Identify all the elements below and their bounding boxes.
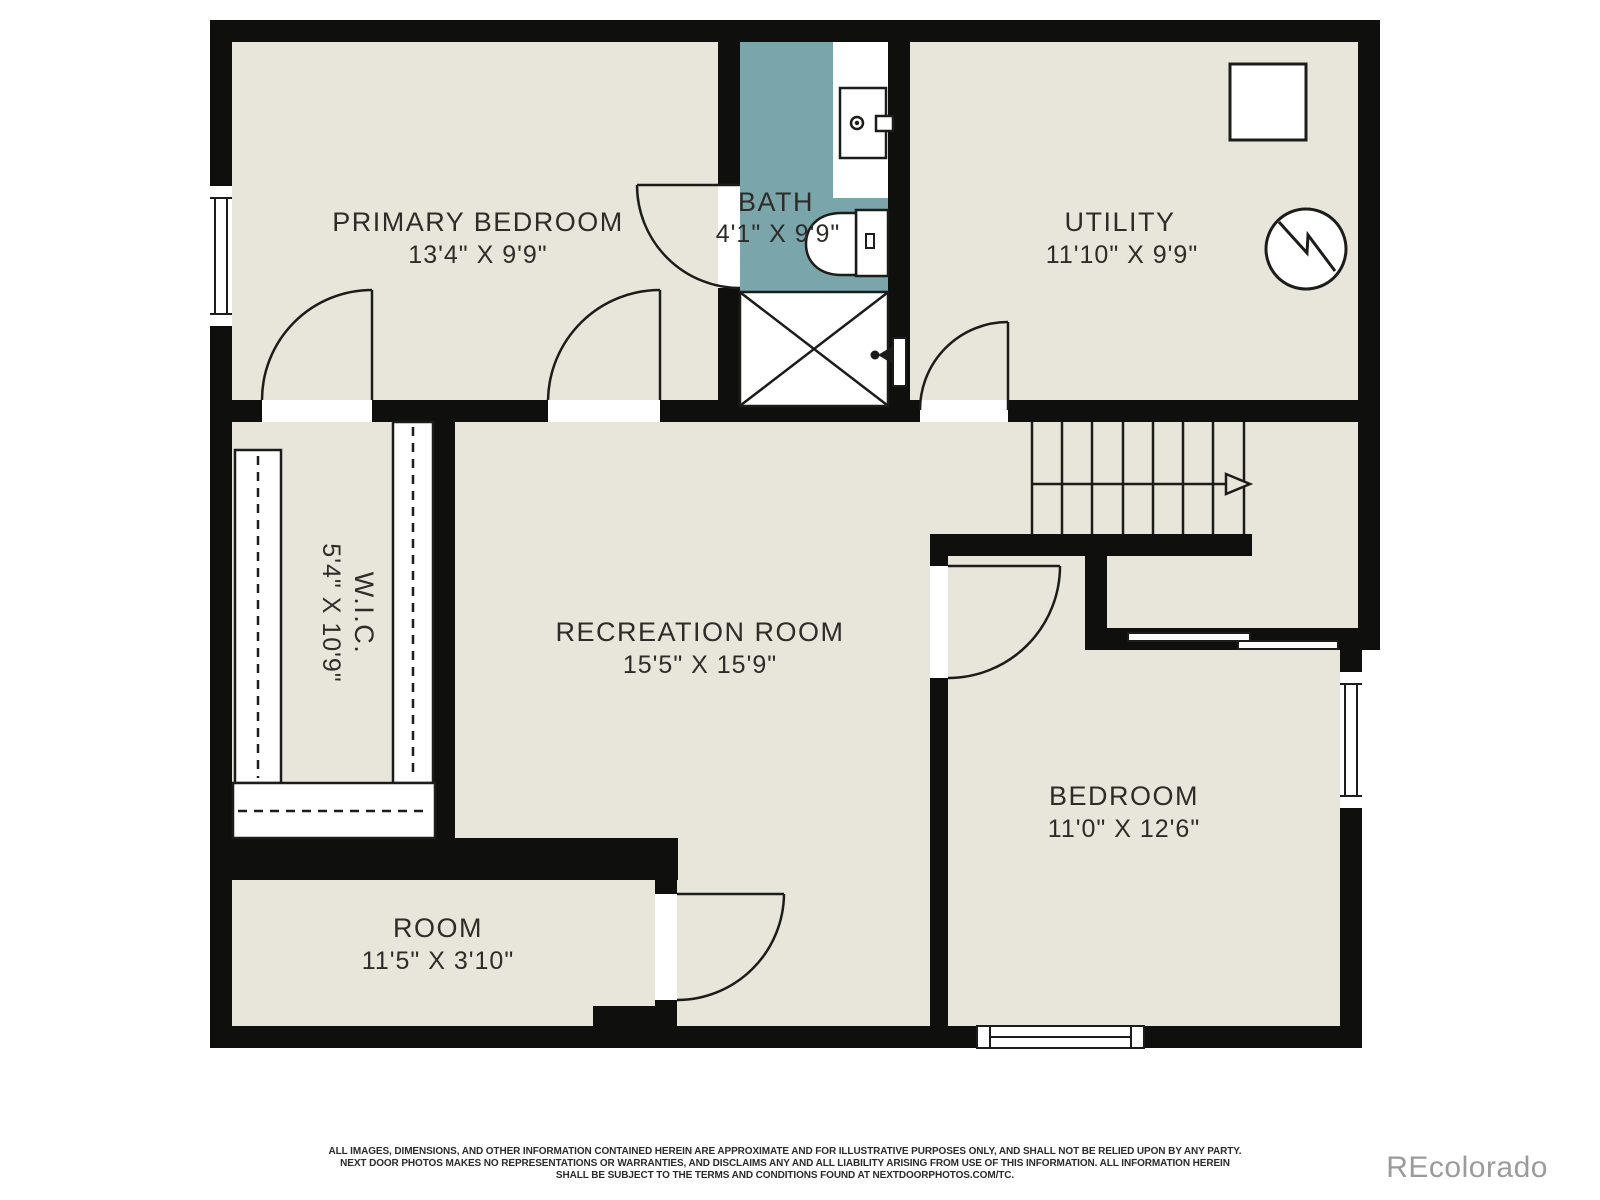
shower: [740, 292, 906, 406]
disclaimer-line-3: SHALL BE SUBJECT TO THE TERMS AND CONDIT…: [556, 1170, 1014, 1181]
furnace-icon: [1230, 64, 1306, 140]
wall-segment: [1008, 400, 1358, 422]
disclaimer-line-1: ALL IMAGES, DIMENSIONS, AND OTHER INFORM…: [329, 1146, 1242, 1157]
wall-segment: [1358, 20, 1380, 650]
wic-dims: 5'4" X 10'9": [317, 543, 345, 682]
bath-dims: 4'1" X 9'9": [716, 220, 840, 248]
disclaimer-line-2: NEXT DOOR PHOTOS MAKES NO REPRESENTATION…: [340, 1158, 1230, 1169]
door-opening: [930, 566, 948, 678]
wall-segment: [718, 288, 740, 422]
shower-head-icon: [893, 338, 906, 386]
wall-segment: [232, 400, 262, 422]
faucet-dot: [855, 121, 859, 125]
window-right: [1340, 672, 1362, 808]
sink-handle: [876, 116, 893, 131]
window-left: [210, 186, 232, 326]
utility-dims: 11'10" X 9'9": [1046, 241, 1198, 269]
bedroom-dims: 11'0" X 12'6": [1048, 815, 1200, 843]
wall-segment: [718, 42, 740, 185]
wall-segment: [210, 1026, 1362, 1048]
primary-bedroom-dims: 13'4" X 9'9": [408, 241, 547, 269]
bedroom-label: BEDROOM: [1049, 781, 1199, 811]
wall-segment: [210, 20, 232, 1048]
shower-nozzle-dot: [871, 351, 880, 360]
window-bottom: [977, 1026, 1144, 1048]
recreation-room-label: RECREATION ROOM: [555, 617, 844, 647]
door-opening: [262, 400, 372, 422]
watermark-logo: REcolorado: [1386, 1151, 1548, 1184]
bath-label: BATH: [738, 187, 814, 217]
room-dims: 11'5" X 3'10": [362, 947, 514, 975]
wall-segment: [210, 20, 1380, 42]
wall-segment: [930, 678, 948, 1026]
wall-segment: [655, 880, 677, 894]
door-opening: [548, 400, 660, 422]
stairs-base-wall: [930, 534, 1252, 556]
utility-label: UTILITY: [1064, 207, 1175, 237]
door-opening: [920, 400, 1008, 422]
wall-segment: [593, 1006, 663, 1028]
door-opening: [655, 894, 677, 1000]
wall-segment: [372, 400, 548, 422]
wall-segment: [433, 400, 455, 880]
wall-segment: [930, 556, 948, 566]
wall-segment: [1085, 556, 1107, 650]
floor-plan-page: PRIMARY BEDROOM 13'4" X 9'9" BATH 4'1" X…: [0, 0, 1600, 1200]
floor-plan: PRIMARY BEDROOM 13'4" X 9'9" BATH 4'1" X…: [0, 0, 1600, 1200]
room-label: ROOM: [393, 913, 483, 943]
wall-segment: [210, 838, 678, 880]
primary-bedroom-label: PRIMARY BEDROOM: [332, 207, 624, 237]
wic-label: W.I.C.: [349, 572, 379, 655]
recreation-room-dims: 15'5" X 15'9": [623, 651, 777, 679]
wall-segment: [655, 1000, 677, 1028]
